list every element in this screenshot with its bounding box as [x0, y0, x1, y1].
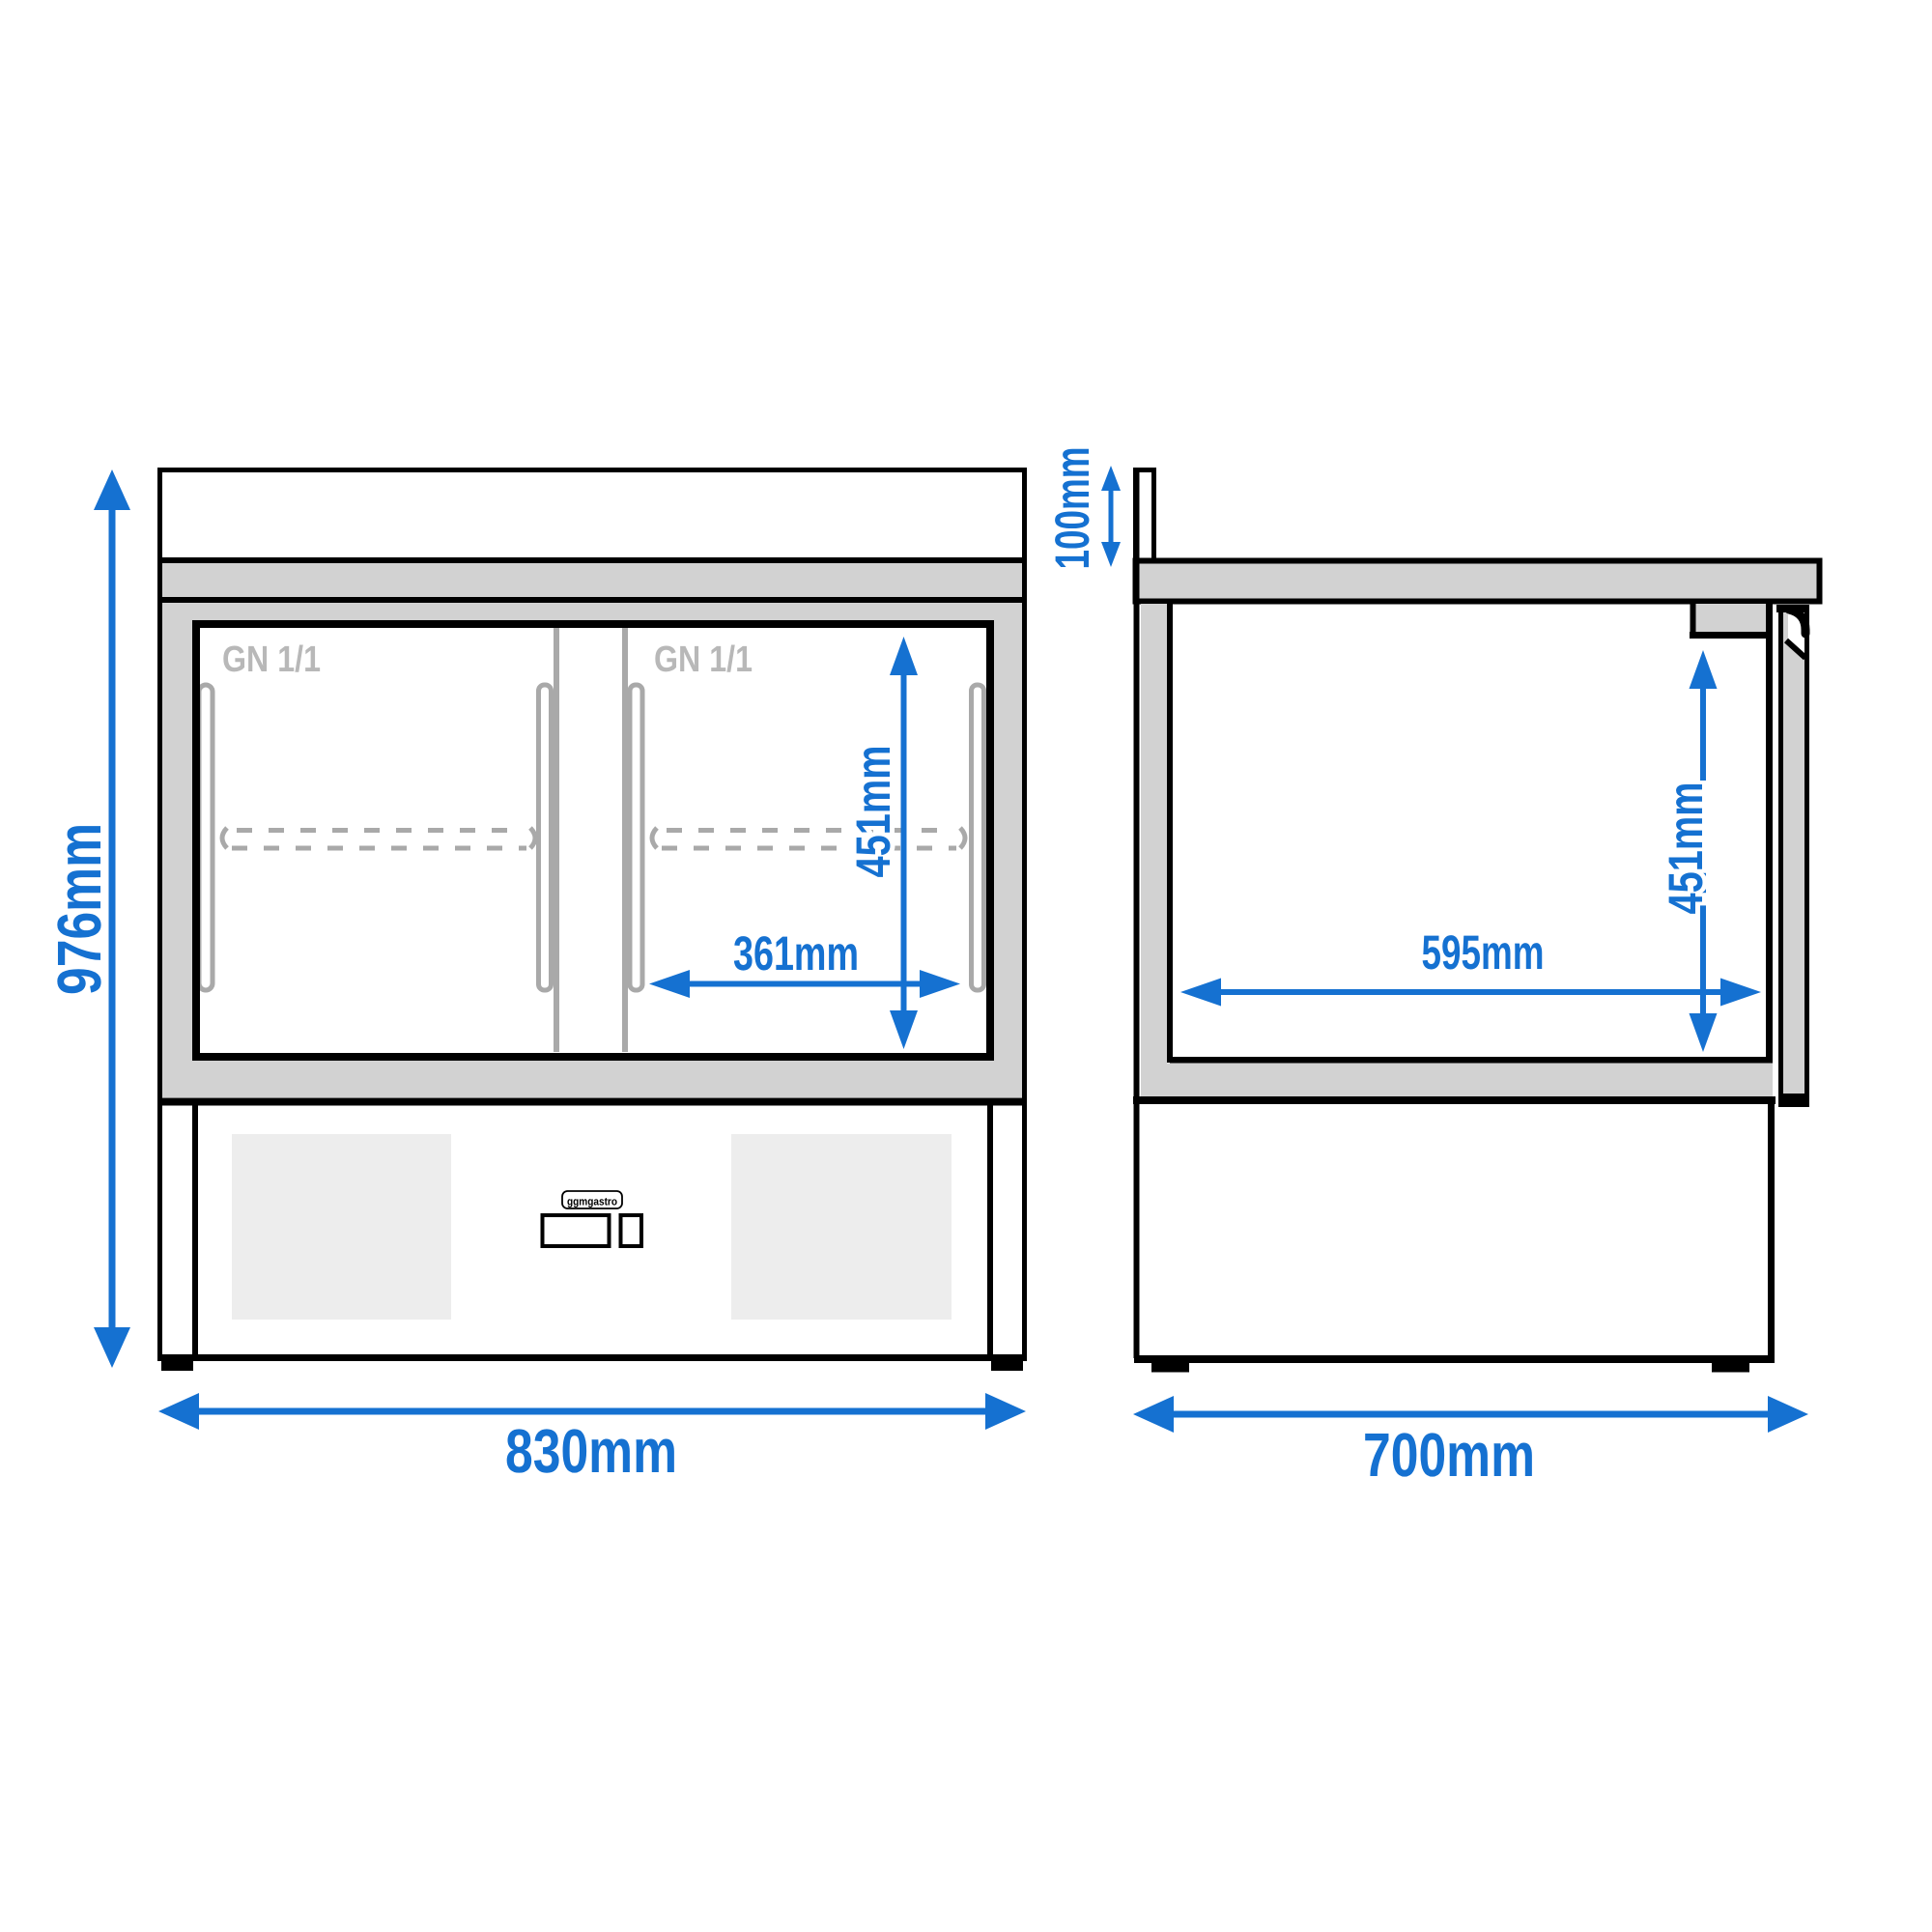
- svg-text:595mm: 595mm: [1422, 925, 1545, 980]
- svg-text:830mm: 830mm: [505, 1416, 677, 1486]
- svg-text:976mm: 976mm: [44, 823, 114, 995]
- svg-text:GN 1/1: GN 1/1: [222, 639, 321, 680]
- svg-text:700mm: 700mm: [1363, 1420, 1535, 1490]
- svg-text:451mm: 451mm: [846, 746, 900, 878]
- svg-text:361mm: 361mm: [733, 926, 859, 980]
- svg-text:ggmgastro: ggmgastro: [567, 1197, 617, 1208]
- svg-text:100mm: 100mm: [1045, 447, 1099, 570]
- svg-text:GN 1/1: GN 1/1: [654, 639, 753, 680]
- svg-text:451mm: 451mm: [1659, 782, 1713, 915]
